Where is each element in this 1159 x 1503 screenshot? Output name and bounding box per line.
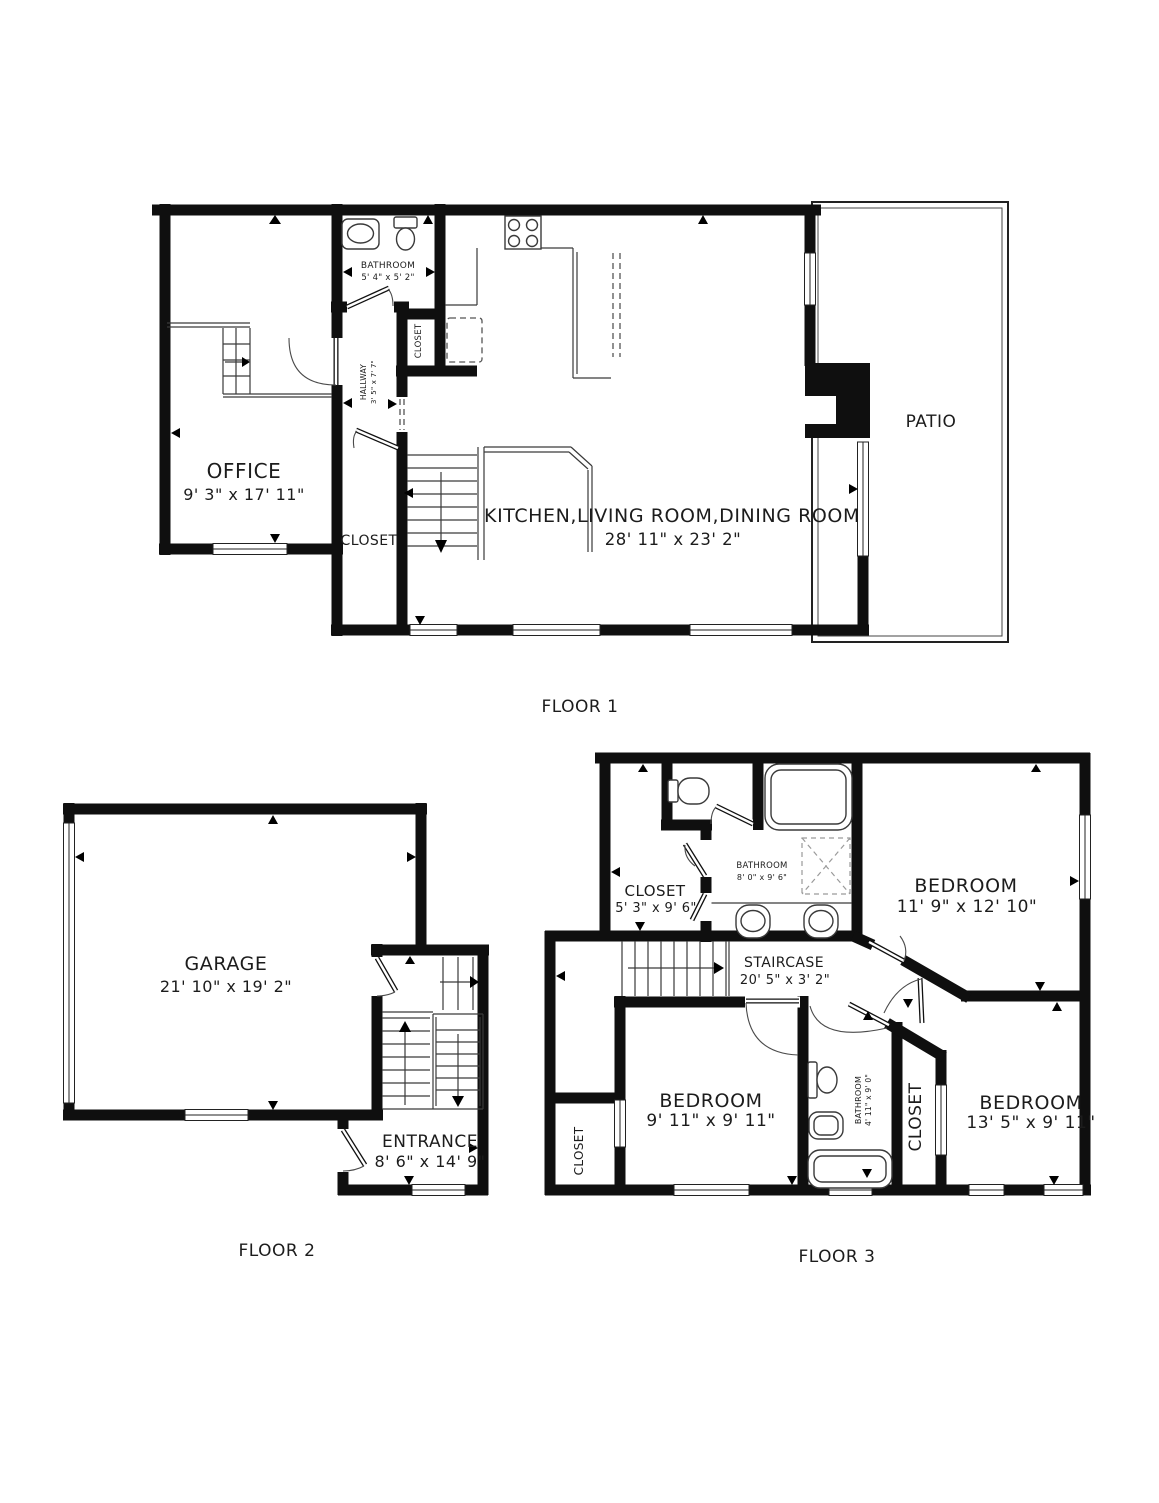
hallway-label: HALLWAY: [359, 364, 368, 400]
bathroom1-toilet: [394, 217, 417, 250]
closet-top-dims: 5' 3" x 9' 6": [615, 901, 696, 916]
closet-top-door: [685, 840, 712, 877]
floor1-label: FLOOR 1: [541, 697, 618, 717]
stove: [505, 216, 541, 249]
kitchen-dashed-opening: [610, 250, 623, 360]
bathtub-mid: [808, 1150, 892, 1188]
bathroom-top-label: BATHROOM: [736, 861, 787, 871]
floor-2-plan: GARAGE 21' 10" x 19' 2" ENTRANCE 8' 6" x…: [63, 803, 489, 1261]
floor2-label: FLOOR 2: [238, 1241, 315, 1261]
closet-small-label: CLOSET: [414, 323, 424, 358]
main-room-dims: 28' 11" x 23' 2": [605, 530, 741, 549]
garage-label: GARAGE: [185, 953, 268, 975]
floor1-windows: [213, 253, 869, 636]
floor3-label: FLOOR 3: [798, 1247, 875, 1267]
closet1-label: CLOSET: [341, 533, 398, 549]
floor1-arrows: [171, 215, 858, 625]
garage-dims: 21' 10" x 19' 2": [160, 977, 292, 996]
floor1-stairs: [404, 447, 592, 560]
bathroom1-dims: 5' 4" x 5' 2": [361, 273, 414, 283]
garage-stair-door: [372, 957, 397, 996]
toilet-room-toilet: [668, 778, 709, 804]
kitchen-counter: [445, 248, 611, 378]
bathroom1-sink: [342, 219, 379, 249]
closet-top-label: CLOSET: [625, 882, 686, 900]
bathroom1-door: [347, 288, 394, 313]
shower-dashed: [802, 838, 850, 894]
bedroom-mid-door: [745, 997, 800, 1056]
entrance-dims: 8' 6" x 14' 9": [375, 1152, 486, 1171]
closet-mid-label: CLOSET: [906, 1082, 926, 1151]
hallway-dashed-opening: [397, 397, 408, 432]
bathroom-top-dims: 8' 0" x 9' 6": [737, 873, 787, 882]
bathroom-mid-label: BATHROOM: [854, 1076, 863, 1124]
staircase-label: STAIRCASE: [744, 955, 824, 971]
office-dims: 9' 3" x 17' 11": [183, 485, 305, 504]
floor3-diagonal-walls: [853, 936, 969, 1057]
bedroom-right-door: [884, 978, 922, 1023]
toilet-room-door: [711, 806, 753, 831]
toilet-mid: [808, 1062, 837, 1098]
bedroom-master-label: BEDROOM: [914, 875, 1017, 897]
floor1-walls: [152, 204, 869, 636]
main-room-label: KITCHEN,LIVING ROOM,DINING ROOM: [484, 505, 860, 527]
patio-label: PATIO: [906, 412, 957, 432]
closet-left-label: CLOSET: [572, 1126, 586, 1175]
bathroom-mid-door: [810, 1004, 889, 1032]
sink-mid: [809, 1112, 843, 1139]
bedroom-mid-label: BEDROOM: [659, 1090, 762, 1112]
floor-1-plan: OFFICE 9' 3" x 17' 11" BATHROOM 5' 4" x …: [152, 202, 1008, 717]
bedroom-master-dims: 11' 9" x 12' 10": [897, 897, 1038, 917]
floor3-staircase: [622, 941, 729, 996]
bathtub-top: [765, 764, 852, 830]
staircase-dims: 20' 5" x 3' 2": [740, 973, 830, 988]
entrance-label: ENTRANCE: [382, 1132, 478, 1152]
hall-closet-door: [347, 430, 398, 454]
floorplan-svg: OFFICE 9' 3" x 17' 11" BATHROOM 5' 4" x …: [0, 0, 1159, 1499]
patio-door-recess: [800, 396, 836, 424]
bedroom-mid-dims: 9' 11" x 9' 11": [646, 1111, 775, 1131]
office-door: [289, 338, 343, 385]
office-stair: [167, 323, 332, 397]
floor-3-plan: CLOSET 5' 3" x 9' 6" BATHROOM 8' 0" x 9'…: [545, 753, 1096, 1267]
entrance-door: [338, 1129, 366, 1172]
bathroom1-label: BATHROOM: [361, 261, 415, 271]
bedroom-right-dims: 13' 5" x 9' 11": [966, 1113, 1095, 1133]
floor2-stairs: [382, 957, 483, 1109]
office-label: OFFICE: [207, 459, 282, 483]
bedroom-right-label: BEDROOM: [979, 1092, 1082, 1114]
dishwasher-dashed: [447, 318, 482, 362]
floorplan-page: OFFICE 9' 3" x 17' 11" BATHROOM 5' 4" x …: [0, 0, 1159, 1499]
hallway-dims: 3' 5" x 7' 7": [370, 360, 378, 404]
bathroom-mid-dims: 4' 11" x 9' 0": [864, 1074, 873, 1126]
